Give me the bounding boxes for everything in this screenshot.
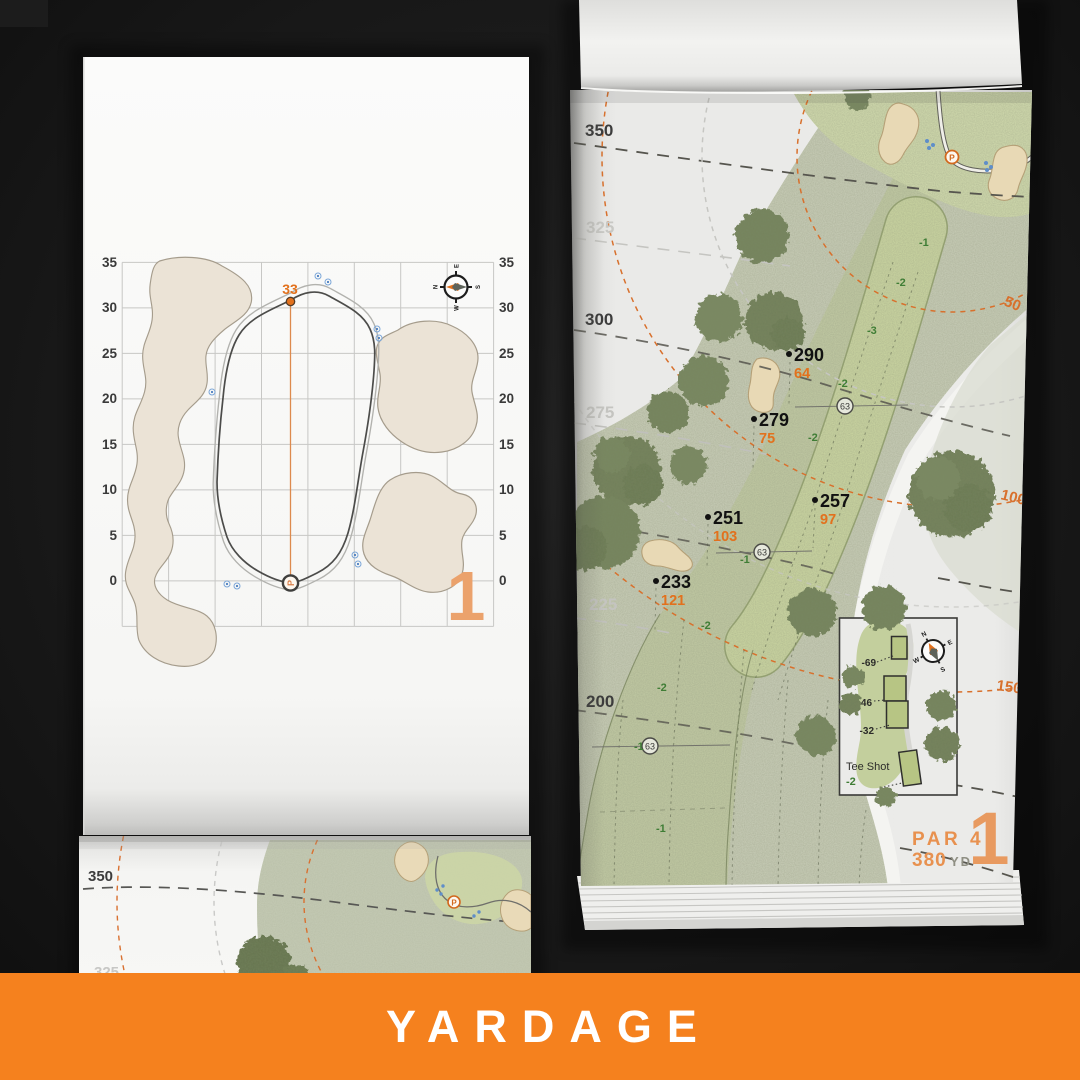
svg-text:P: P (451, 899, 457, 908)
svg-text:15: 15 (499, 437, 515, 452)
svg-text:-32: -32 (860, 726, 875, 737)
svg-text:63: 63 (757, 548, 767, 558)
svg-text:63: 63 (645, 742, 655, 752)
svg-text:97: 97 (820, 512, 836, 528)
svg-text:1: 1 (968, 797, 1009, 880)
svg-text:-69: -69 (862, 658, 877, 669)
svg-text:N: N (434, 285, 440, 289)
svg-text:-1: -1 (919, 237, 929, 249)
svg-text:25: 25 (102, 346, 118, 361)
svg-text:30: 30 (102, 300, 117, 315)
svg-text:P: P (286, 580, 296, 586)
svg-text:P: P (949, 153, 955, 163)
svg-text:-1: -1 (740, 554, 750, 566)
svg-text:380: 380 (912, 850, 947, 871)
svg-text:75: 75 (759, 431, 775, 447)
svg-text:-1: -1 (656, 823, 666, 835)
svg-text:1: 1 (447, 557, 486, 635)
svg-text:-3: -3 (867, 325, 877, 337)
svg-text:63: 63 (840, 402, 850, 412)
svg-text:121: 121 (661, 593, 685, 609)
svg-text:YARDAGE: YARDAGE (386, 1001, 712, 1052)
svg-text:15: 15 (102, 437, 118, 452)
svg-text:-2: -2 (838, 378, 848, 390)
svg-text:25: 25 (499, 346, 515, 361)
svg-text:W: W (455, 305, 461, 311)
svg-text:233: 233 (661, 572, 691, 592)
svg-text:33: 33 (282, 281, 298, 297)
svg-text:35: 35 (102, 255, 118, 270)
svg-text:30: 30 (499, 300, 514, 315)
svg-text:10: 10 (499, 482, 514, 497)
svg-text:290: 290 (794, 345, 824, 365)
svg-text:0: 0 (109, 573, 117, 588)
svg-text:0: 0 (499, 573, 507, 588)
svg-text:257: 257 (820, 491, 850, 511)
svg-text:S: S (476, 285, 482, 289)
svg-text:20: 20 (499, 391, 514, 406)
svg-text:64: 64 (794, 366, 810, 382)
svg-text:E: E (455, 264, 461, 268)
svg-text:279: 279 (759, 410, 789, 430)
svg-text:-2: -2 (846, 776, 856, 788)
svg-text:Tee Shot: Tee Shot (846, 761, 889, 773)
svg-text:20: 20 (102, 391, 117, 406)
svg-text:5: 5 (499, 528, 507, 543)
svg-text:35: 35 (499, 255, 515, 270)
svg-text:-1: -1 (634, 741, 644, 753)
svg-text:10: 10 (102, 482, 117, 497)
svg-text:-2: -2 (808, 432, 818, 444)
svg-text:103: 103 (713, 529, 737, 545)
svg-text:5: 5 (109, 528, 117, 543)
svg-text:-2: -2 (701, 620, 711, 632)
svg-text:350: 350 (88, 868, 113, 885)
svg-text:251: 251 (713, 508, 743, 528)
svg-text:-2: -2 (896, 277, 906, 289)
svg-text:-2: -2 (657, 682, 667, 694)
